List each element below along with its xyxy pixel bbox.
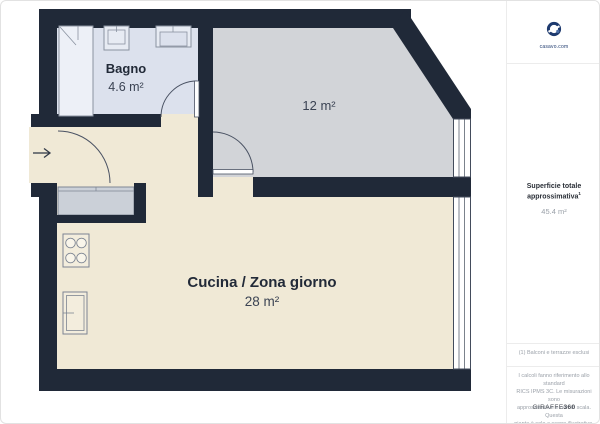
stove-fixture xyxy=(63,234,89,267)
floorplan-page: Bagno 4.6 m² 12 m² Cucina / Zona giorno … xyxy=(0,0,600,424)
agency-logo-caption: casavo.com xyxy=(507,44,600,50)
toilet-fixture xyxy=(156,26,191,47)
footnote-text: (1) Balconi e terrazze esclusi xyxy=(507,350,600,356)
cucina-area-label: 28 m² xyxy=(245,294,280,309)
sink-fixture xyxy=(63,292,87,334)
washbasin-fixture xyxy=(104,26,129,50)
disclaimer-line: RICS IPMS 3C. Le misurazioni sono xyxy=(511,389,597,405)
separator xyxy=(507,343,600,344)
total-area-footnote-mark: 1 xyxy=(578,191,581,196)
total-area-block: Superficie totale approssimativa1 45.4 m… xyxy=(507,182,600,216)
total-area-label: Superficie totale approssimativa1 xyxy=(507,182,600,202)
total-area-label-line1: Superficie totale xyxy=(527,183,581,190)
bagno-label: Bagno xyxy=(106,61,147,76)
brand-suffix: 360 xyxy=(563,404,575,411)
disclaimer-line: I calcoli fanno riferimento allo standar… xyxy=(511,373,597,389)
window-lower xyxy=(454,197,471,369)
bagno-area-label: 4.6 m² xyxy=(108,80,143,94)
giraffe360-brand: GIRAFFE360 xyxy=(507,404,600,411)
sidebar: casavo.com Superficie totale approssimat… xyxy=(507,1,600,424)
camera-area-label: 12 m² xyxy=(302,98,336,113)
cucina-label: Cucina / Zona giorno xyxy=(187,274,336,291)
floorplan-drawing: Bagno 4.6 m² 12 m² Cucina / Zona giorno … xyxy=(1,1,506,424)
shower-fixture xyxy=(59,26,93,116)
brand-name: GIRAFFE xyxy=(532,404,563,411)
separator xyxy=(507,63,600,64)
total-area-label-line2: approssimativa xyxy=(527,194,578,201)
disclaimer-text: I calcoli fanno riferimento allo standar… xyxy=(511,373,597,424)
total-area-value: 45.4 m² xyxy=(507,207,600,216)
window-upper xyxy=(454,119,471,177)
wardrobe-fixture xyxy=(58,187,134,215)
agency-logo-icon xyxy=(546,21,562,37)
separator xyxy=(507,366,600,367)
agency-logo: casavo.com xyxy=(507,21,600,50)
